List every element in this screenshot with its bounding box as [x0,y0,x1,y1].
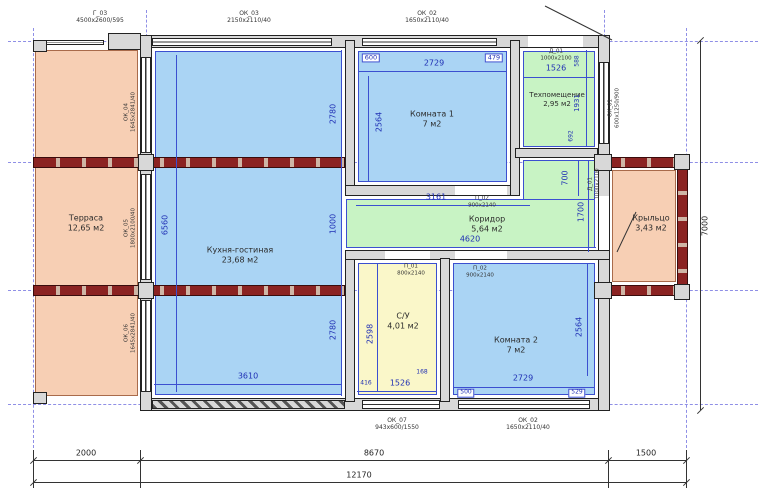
dim-1526-tech: 1526 [546,65,566,74]
dim-2780-top: 2780 [330,104,339,124]
room-label-room1: Комната 1 7 м2 [410,110,454,131]
dim-588: 588 [575,55,582,66]
room-name: Кухня-гостиная [207,246,273,256]
opening-label-ok06: ОК_06 1645x2841/40 [123,313,136,353]
room-area: 4,01 м2 [387,322,418,332]
dim-4620: 4620 [460,236,480,245]
opening-code: ОК_07 [375,417,419,424]
room-name: С/У [387,312,418,322]
room-label-terrace: Терраса 12,65 м2 [68,214,105,235]
opening-size: 800x2140 [397,270,425,277]
opening-size: 943x600/1550 [375,424,419,431]
opening-code: ОК_01 [607,88,614,128]
opening-label-ok04: ОК_04 1645x2841/40 [123,92,136,132]
opening-label-p02-room2: П_02 900x2140 [466,265,494,278]
opening-label-ok07: ОК_07 943x600/1550 [375,417,419,431]
dim-1700: 1700 [578,202,587,222]
opening-label-ok01: ОК_01 600x1250/900 [607,88,620,128]
room-label-kitchen: Кухня-гостиная 23,68 м2 [207,246,273,267]
dim-2729-room2: 2729 [513,375,533,384]
opening-size: 1645x2841/40 [130,92,137,132]
room-name: Коридор [469,215,505,225]
room-area: 7 м2 [494,346,538,356]
dim-600: 600 [362,53,380,62]
dim-1500: 1500 [636,450,656,459]
opening-label-d01-entry: Д_01 1000x2100 [587,168,600,199]
dim-692: 692 [569,130,576,141]
dim-3161: 3161 [426,194,446,203]
opening-label-ok03: ОК_03 2150x2110/40 [227,10,271,24]
opening-size: 1650x2110/40 [405,17,449,24]
opening-size: 900x2140 [466,272,494,279]
room-name: Терраса [68,214,105,224]
opening-code: П_01 [397,263,425,270]
opening-code: ОК_05 [123,208,130,248]
room-label-porch: Крыльцо 3,43 м2 [632,214,669,235]
floor-plan-canvas: Терраса 12,65 м2 Кухня-гостиная 23,68 м2… [0,0,771,502]
opening-code: ОК_02 [506,417,550,424]
opening-size: 2150x2110/40 [227,17,271,24]
opening-code: ОК_04 [123,92,130,132]
opening-size: 1800x2100/40 [130,208,137,248]
opening-size: 4500x2600/595 [76,17,124,24]
dim-1931: 1931 [574,94,582,112]
opening-code: П_02 [468,195,496,202]
dim-500: 500 [457,389,474,398]
opening-label-ok05: ОК_05 1800x2100/40 [123,208,136,248]
dim-12170: 12170 [346,472,371,481]
opening-code: П_02 [466,265,494,272]
dim-416: 416 [360,381,371,388]
opening-label-p01: П_01 800x2140 [397,263,425,276]
opening-size: 1000x2100 [540,55,571,62]
room-label-room2: Комната 2 7 м2 [494,336,538,357]
opening-label-ok02-bottom: ОК_02 1650x2110/40 [506,417,550,431]
room-area: 3,43 м2 [632,224,669,234]
dim-2729-room1: 2729 [424,60,444,69]
room-label-corridor: Коридор 5,64 м2 [469,215,505,236]
opening-code: ОК_02 [405,10,449,17]
opening-code: Д_01 [540,48,571,55]
dim-700: 700 [562,170,571,185]
opening-code: Г_03 [76,10,124,17]
opening-label-d01-tech: Д_01 1000x2100 [540,48,571,61]
dim-7000: 7000 [702,216,711,236]
room-area: 12,65 м2 [68,224,105,234]
opening-code: ОК_06 [123,313,130,353]
opening-size: 900x2140 [468,202,496,209]
room-label-bathroom: С/У 4,01 м2 [387,312,418,333]
opening-code: ОК_03 [227,10,271,17]
opening-code: Д_01 [587,168,594,199]
opening-label-ok02-top: ОК_02 1650x2110/40 [405,10,449,24]
opening-size: 1645x2841/40 [130,313,137,353]
room-name: Комната 1 [410,110,454,120]
dim-6560: 6560 [162,215,171,235]
opening-size: 600x1250/900 [614,88,621,128]
dim-2000: 2000 [76,450,96,459]
dim-1526-bath: 1526 [390,380,410,389]
dim-3610: 3610 [238,373,258,382]
dim-529: 529 [568,389,585,398]
dim-2598: 2598 [367,324,376,344]
dim-8670: 8670 [364,450,384,459]
opening-label-g03: Г_03 4500x2600/595 [76,10,124,24]
dim-2780-bottom: 2780 [330,320,339,340]
dim-2564-room1: 2564 [376,112,385,132]
dim-479: 479 [485,53,503,62]
room-name: Комната 2 [494,336,538,346]
room-name: Крыльцо [632,214,669,224]
dim-168: 168 [416,370,427,377]
room-area: 7 м2 [410,120,454,130]
opening-size: 1000x2100 [594,168,601,199]
dim-2564-room2: 2564 [576,317,585,337]
room-area: 23,68 м2 [207,256,273,266]
opening-size: 1650x2110/40 [506,424,550,431]
opening-label-p02-room1: П_02 900x2140 [468,195,496,208]
dim-1000: 1000 [330,214,339,234]
